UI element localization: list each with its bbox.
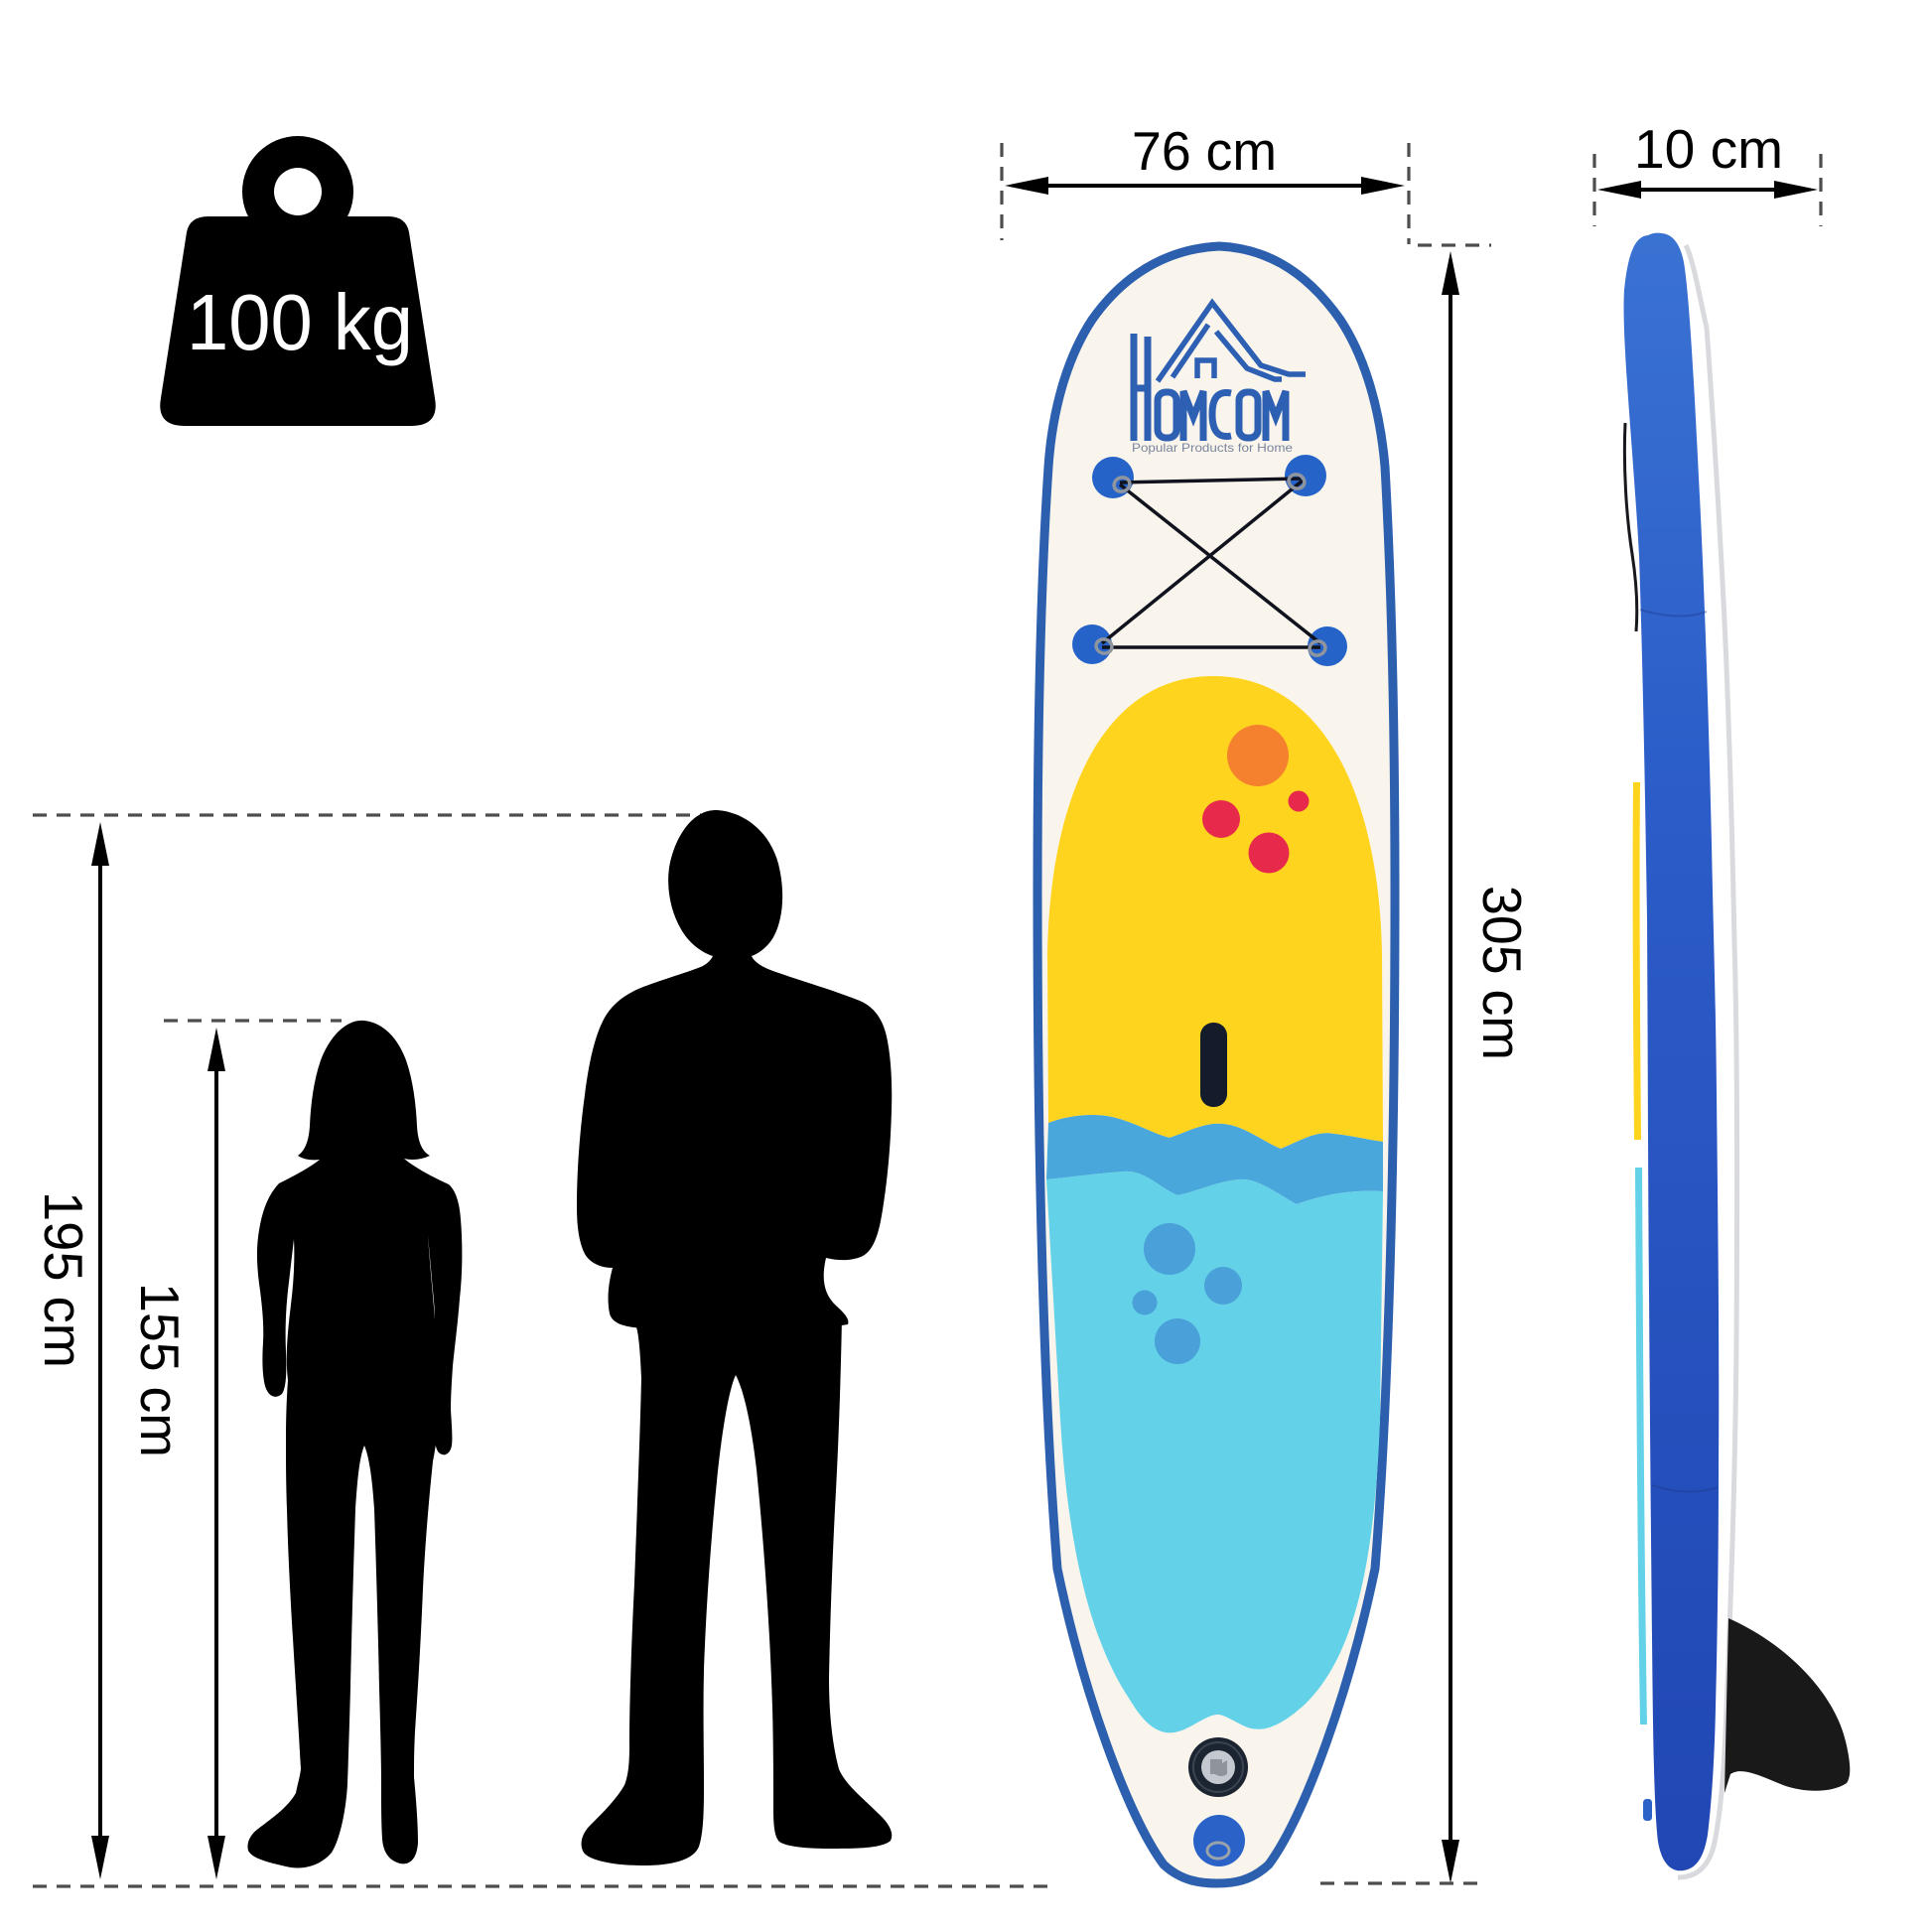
svg-text:10 cm: 10 cm (1634, 118, 1783, 180)
svg-text:100 kg: 100 kg (187, 278, 413, 366)
svg-text:Popular Products for Home: Popular Products for Home (1132, 441, 1293, 455)
svg-text:195 cm: 195 cm (33, 1191, 94, 1368)
svg-text:155 cm: 155 cm (129, 1283, 191, 1457)
svg-text:305 cm: 305 cm (1471, 886, 1533, 1060)
svg-text:76 cm: 76 cm (1132, 120, 1277, 182)
